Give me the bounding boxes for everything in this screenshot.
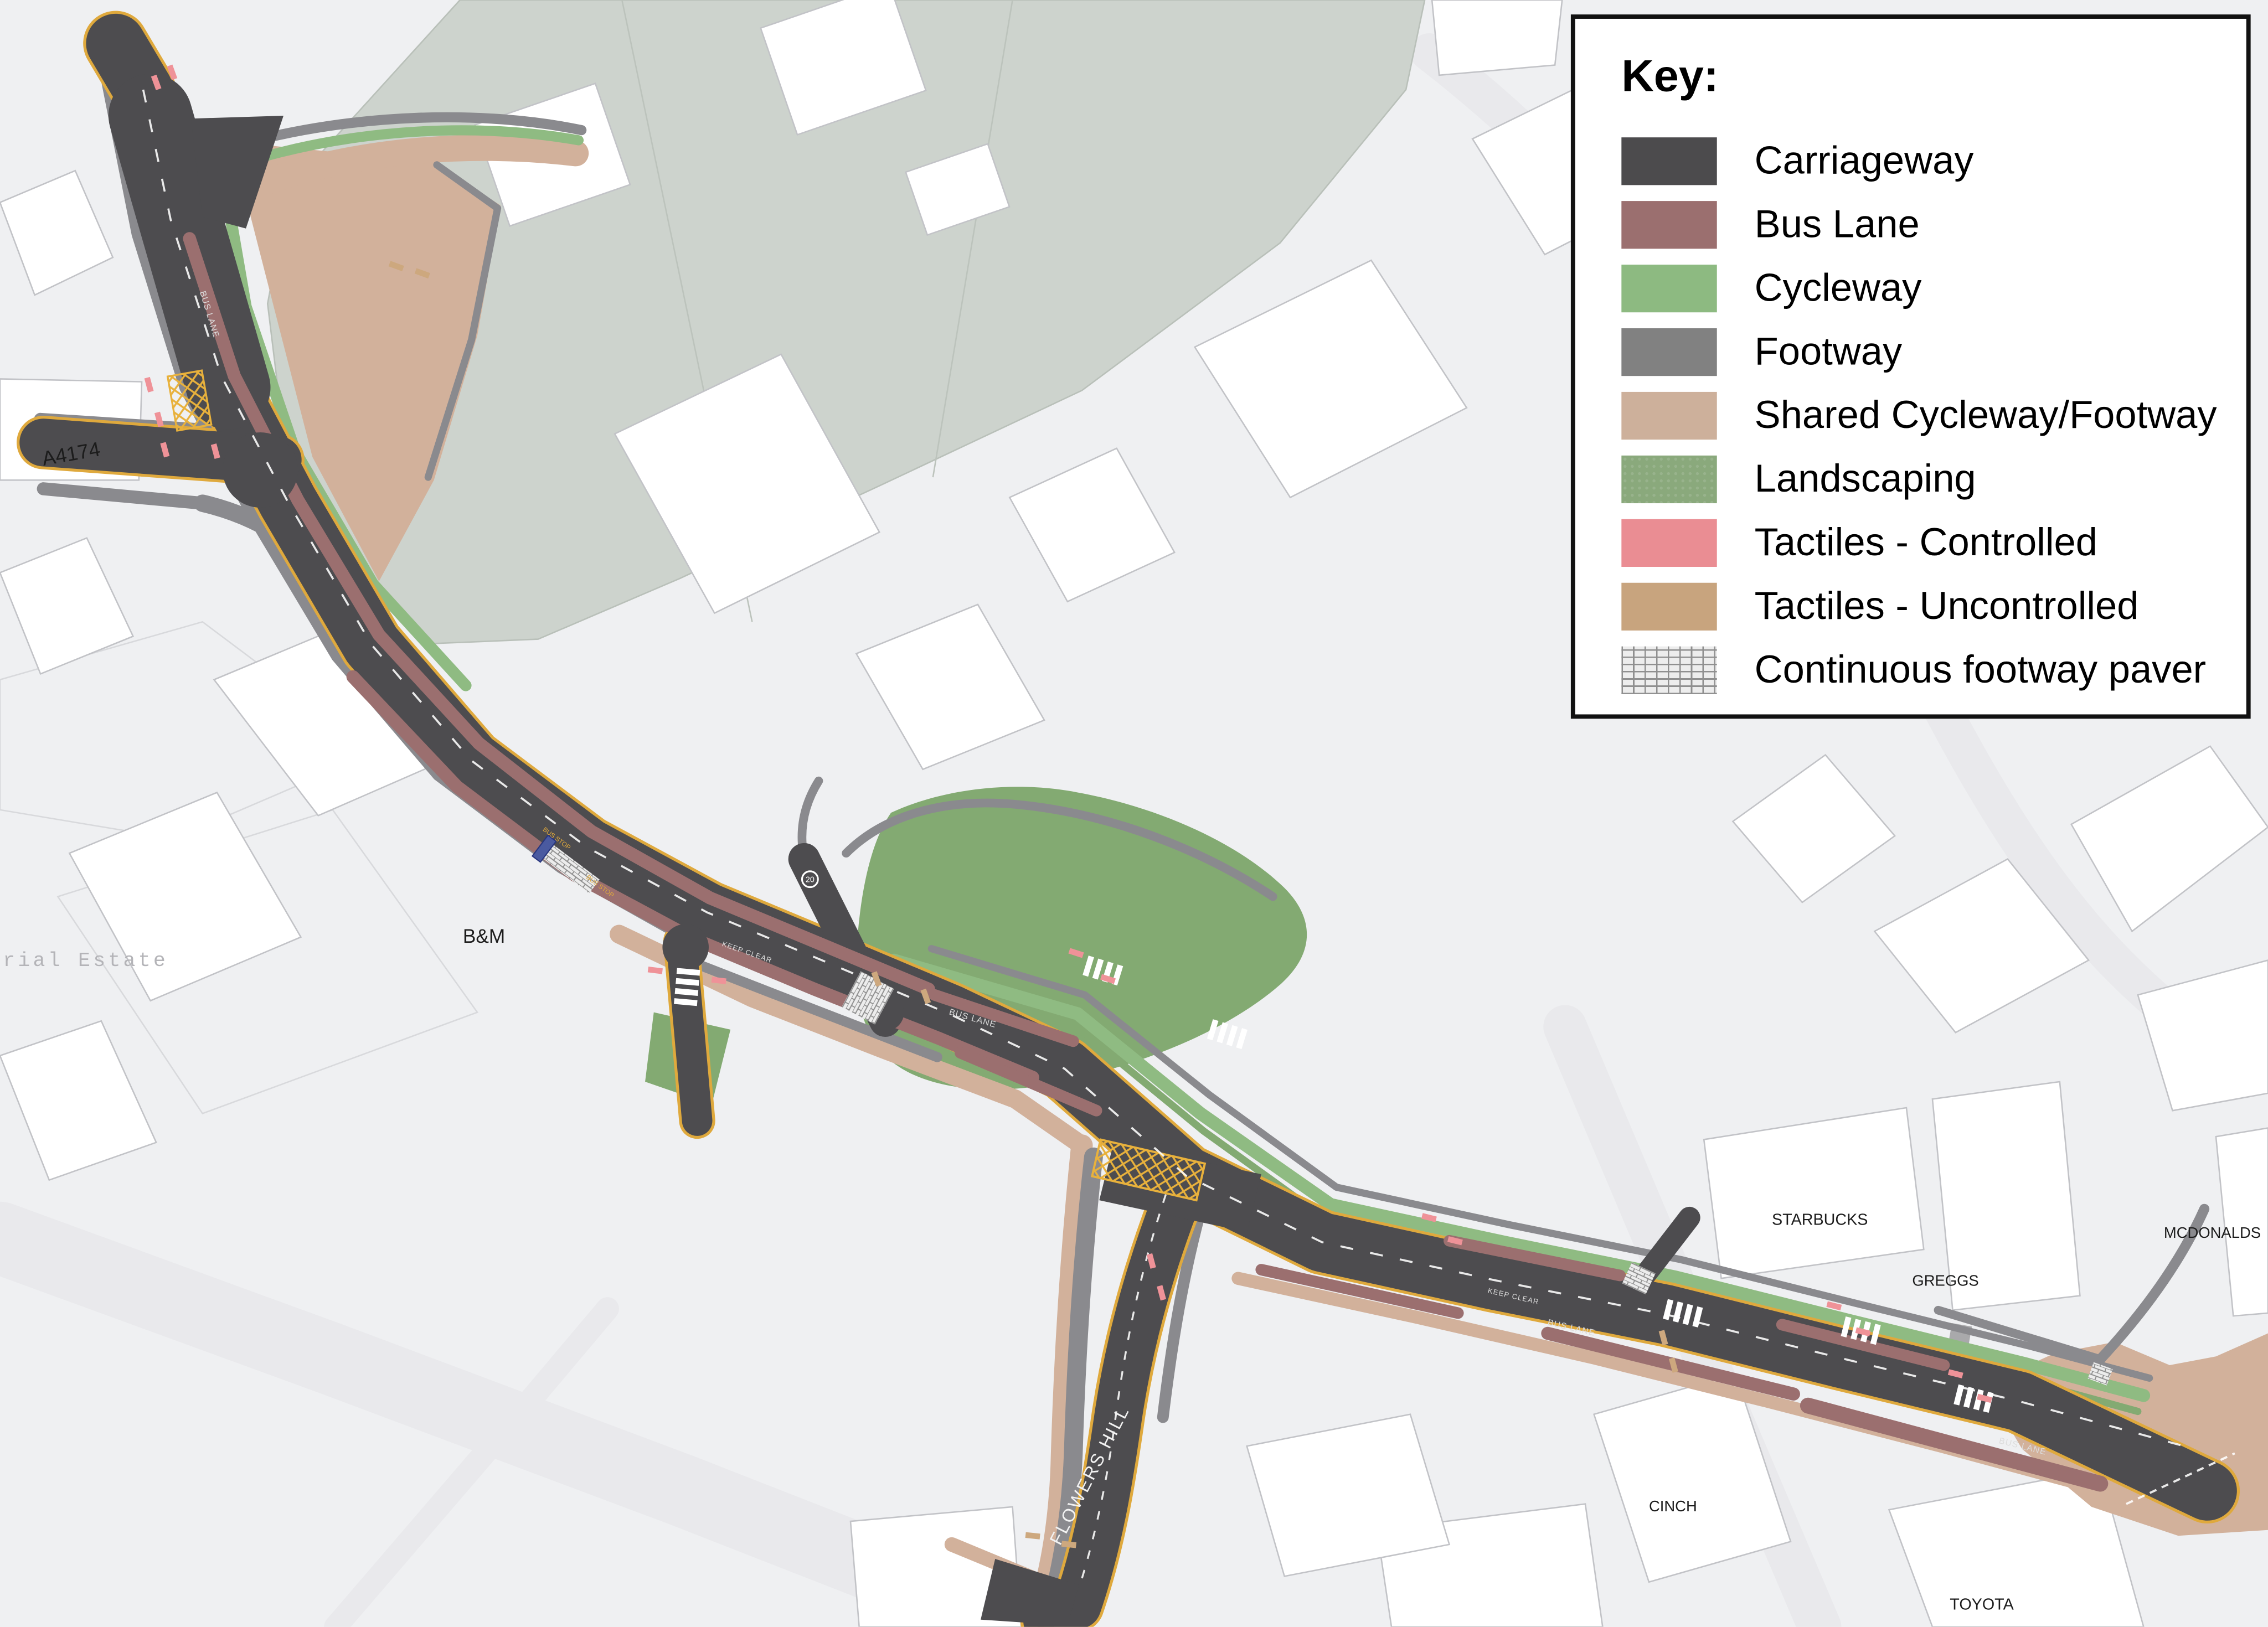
place-label-toyota: TOYOTA [1950, 1595, 2014, 1613]
legend-item-label: Carriageway [1755, 139, 1974, 184]
legend-swatch-landscaping [1621, 456, 1717, 503]
legend-item-footway: Footway [1621, 328, 2246, 376]
place-label-greggs: GREGGS [1912, 1272, 1978, 1289]
legend-swatch-cycleway [1621, 265, 1717, 312]
legend-item-tactiles-uncontrolled: Tactiles - Uncontrolled [1621, 583, 2246, 631]
legend-swatch-tactiles-controlled [1621, 519, 1717, 567]
place-label-cinch: CINCH [1649, 1497, 1697, 1515]
legend-swatch-footway [1621, 328, 1717, 376]
legend: Key: Carriageway Bus Lane Cycleway Footw… [1571, 14, 2251, 719]
legend-item-tactiles-controlled: Tactiles - Controlled [1621, 519, 2246, 567]
speed-roundel-text: 20 [806, 875, 815, 884]
place-label-mcdonalds: MCDONALDS [2164, 1224, 2261, 1241]
scheme-plan-canvas: 20 BUS LANE BUS LANE BUS LANE BUS LANE B… [0, 0, 2268, 1627]
legend-swatch-tactiles-uncontrolled [1621, 583, 1717, 631]
legend-item-cycleway: Cycleway [1621, 265, 2246, 312]
legend-swatch-carriageway [1621, 137, 1717, 185]
legend-swatch-shared [1621, 392, 1717, 440]
legend-item-shared: Shared Cycleway/Footway [1621, 392, 2246, 440]
legend-item-label: Landscaping [1755, 457, 1976, 502]
legend-item-carriageway: Carriageway [1621, 137, 2246, 185]
place-label-starbucks: STARBUCKS [1772, 1211, 1868, 1229]
place-label-industrial-estate: rial Estate [3, 949, 168, 972]
legend-swatch-paver [1621, 647, 1717, 694]
legend-item-label: Tactiles - Controlled [1755, 520, 2097, 565]
legend-item-bus-lane: Bus Lane [1621, 201, 2246, 249]
legend-item-label: Cycleway [1755, 266, 1922, 311]
legend-swatch-bus-lane [1621, 201, 1717, 249]
place-label-bm: B&M [463, 926, 505, 947]
legend-item-label: Footway [1755, 330, 1903, 375]
legend-title: Key: [1621, 50, 2246, 102]
legend-item-label: Shared Cycleway/Footway [1755, 394, 2217, 438]
legend-item-landscaping: Landscaping [1621, 456, 2246, 503]
legend-item-label: Continuous footway paver [1755, 648, 2207, 693]
legend-item-paver: Continuous footway paver [1621, 647, 2246, 694]
legend-item-label: Tactiles - Uncontrolled [1755, 584, 2139, 629]
legend-item-label: Bus Lane [1755, 203, 1920, 247]
